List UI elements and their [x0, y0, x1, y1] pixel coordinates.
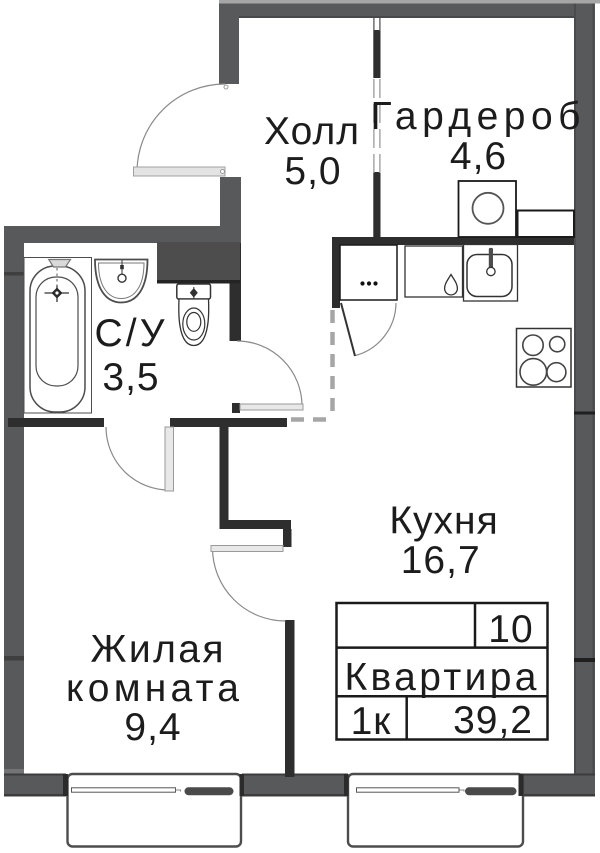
svg-text:1к: 1к — [351, 700, 392, 743]
svg-text:5,0: 5,0 — [284, 150, 341, 193]
svg-text:комната: комната — [66, 667, 240, 710]
svg-text:16,7: 16,7 — [401, 539, 481, 582]
svg-text:С/У: С/У — [95, 312, 166, 355]
svg-text:Холл: Холл — [264, 110, 360, 153]
svg-text:39,2: 39,2 — [453, 699, 533, 742]
svg-text:3,5: 3,5 — [102, 356, 159, 399]
svg-text:Квартира: Квартира — [345, 656, 538, 699]
svg-text:9,4: 9,4 — [124, 706, 181, 749]
svg-text:10: 10 — [488, 608, 533, 651]
svg-text:Жилая: Жилая — [91, 628, 225, 671]
svg-text:Кухня: Кухня — [389, 500, 498, 543]
svg-text:Гардероб: Гардероб — [371, 95, 582, 138]
svg-text:4,6: 4,6 — [450, 135, 507, 178]
